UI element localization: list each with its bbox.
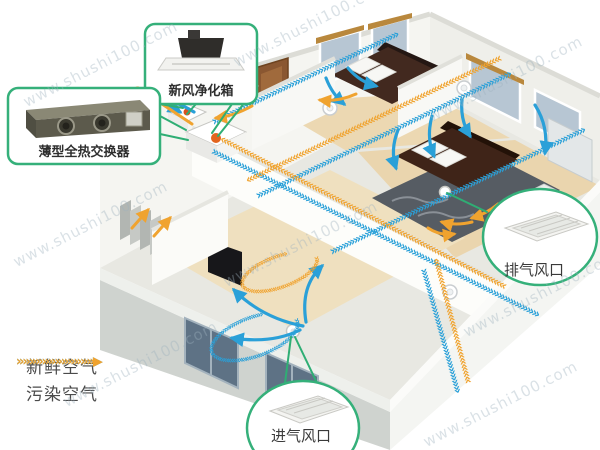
legend-polluted-air: »»»»»»»»»»»»▶ 污染空气: [14, 379, 98, 406]
callout-exchanger: 薄型全热交换器: [8, 88, 160, 164]
wall-fan-icon: [323, 101, 337, 115]
purifier-label: 新风净化箱: [168, 83, 233, 99]
exchanger-label: 薄型全热交换器: [38, 144, 130, 160]
exhaust-label: 排气风口: [504, 261, 564, 279]
callout-purifier: 新风净化箱: [145, 24, 257, 104]
callout-exhaust-vent: 排气风口: [483, 189, 597, 285]
polluted-air-arrow-icon: »»»»»»»»»»»»▶: [14, 352, 110, 370]
ventilation-diagram: »»»»»»»»»»»»»»»»»»»»»»»»»»»»»»»»»»»»»»»»…: [0, 0, 600, 450]
legend-polluted-air-label: 污染空气: [26, 380, 98, 405]
legend: »»»»»»»»»»»»▶ 新鲜空气 »»»»»»»»»»»»▶ 污染空气: [14, 352, 98, 406]
svg-text:»»»»»»»»»»»»▶: »»»»»»»»»»»»▶: [16, 355, 103, 370]
intake-label: 进气风口: [271, 427, 331, 445]
